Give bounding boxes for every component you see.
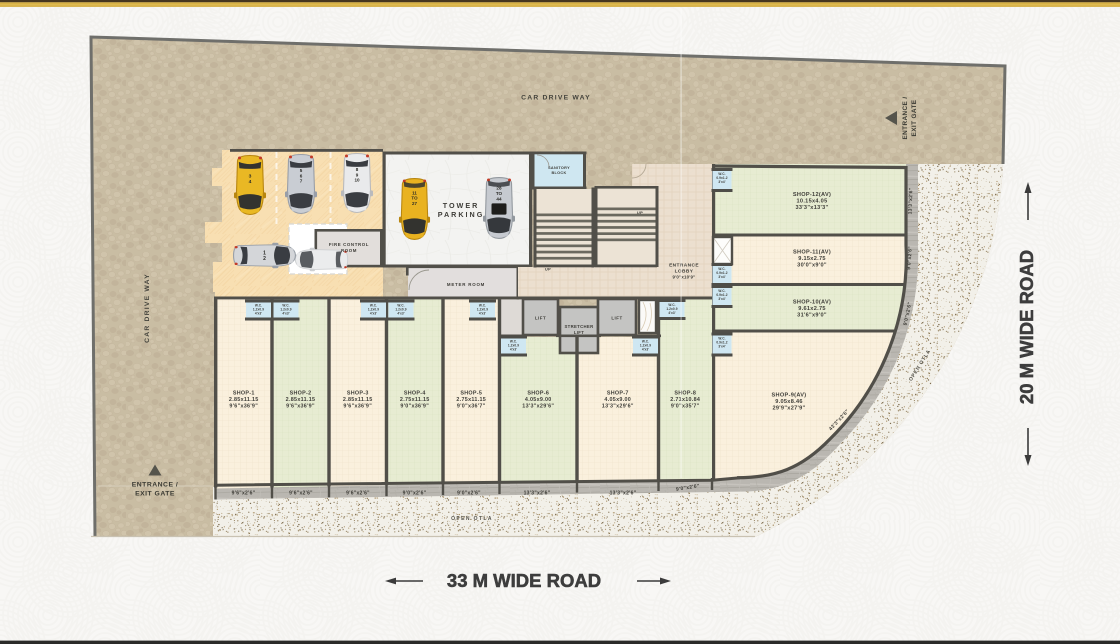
svg-text:SANITORY: SANITORY bbox=[548, 166, 570, 170]
svg-text:SHOP-4: SHOP-4 bbox=[404, 391, 426, 397]
svg-text:BLOCK: BLOCK bbox=[552, 171, 567, 175]
svg-text:FIRE CONTROL: FIRE CONTROL bbox=[329, 242, 369, 247]
svg-text:3'x4': 3'x4' bbox=[718, 180, 725, 184]
svg-text:3'x4': 3'x4' bbox=[718, 345, 725, 349]
svg-text:9'0"x36'7": 9'0"x36'7" bbox=[457, 403, 486, 409]
svg-text:SHOP-9(AV): SHOP-9(AV) bbox=[772, 393, 807, 399]
svg-text:2.85x11.15: 2.85x11.15 bbox=[343, 397, 373, 403]
svg-text:9'6"x36'9": 9'6"x36'9" bbox=[286, 403, 315, 409]
svg-text:4'x3': 4'x3' bbox=[479, 312, 486, 316]
svg-text:PARKING: PARKING bbox=[438, 210, 485, 219]
svg-text:33 M WIDE ROAD: 33 M WIDE ROAD bbox=[447, 570, 601, 591]
svg-text:SHOP-7: SHOP-7 bbox=[607, 391, 629, 397]
svg-text:9'6"x2'6": 9'6"x2'6" bbox=[289, 491, 313, 497]
svg-text:4: 4 bbox=[249, 179, 252, 185]
svg-text:SHOP-3: SHOP-3 bbox=[347, 391, 369, 397]
svg-text:ENTRANCE: ENTRANCE bbox=[669, 263, 699, 269]
svg-text:10: 10 bbox=[354, 177, 360, 182]
svg-text:33'3"x13'3": 33'3"x13'3" bbox=[795, 205, 828, 211]
svg-text:CAR DRIVE WAY: CAR DRIVE WAY bbox=[144, 273, 151, 343]
svg-text:2.75x11.15: 2.75x11.15 bbox=[456, 397, 486, 403]
svg-text:SHOP-10(AV): SHOP-10(AV) bbox=[793, 300, 831, 306]
svg-text:EXIT GATE: EXIT GATE bbox=[911, 99, 918, 136]
svg-text:SHOP-6: SHOP-6 bbox=[527, 391, 549, 397]
svg-text:9'0"x36'9": 9'0"x36'9" bbox=[400, 403, 429, 409]
svg-text:9'0"x35'7": 9'0"x35'7" bbox=[671, 403, 700, 409]
svg-text:LIFT: LIFT bbox=[611, 316, 622, 321]
svg-text:SHOP-8: SHOP-8 bbox=[674, 391, 696, 397]
svg-text:9.15x2.75: 9.15x2.75 bbox=[798, 256, 826, 262]
svg-text:4'x3': 4'x3' bbox=[397, 312, 404, 316]
svg-text:9'6"x36'9": 9'6"x36'9" bbox=[229, 403, 258, 409]
svg-text:9.05x8.46: 9.05x8.46 bbox=[775, 399, 803, 405]
svg-text:2.75x11.15: 2.75x11.15 bbox=[400, 397, 430, 403]
svg-text:LIFT: LIFT bbox=[535, 316, 546, 321]
svg-text:31'6"x9'0": 31'6"x9'0" bbox=[797, 312, 827, 318]
svg-text:9.61x2.75: 9.61x2.75 bbox=[798, 306, 826, 312]
svg-text:9'0"x10'9": 9'0"x10'9" bbox=[673, 275, 696, 280]
svg-text:44: 44 bbox=[496, 196, 502, 201]
svg-text:TOWER: TOWER bbox=[443, 201, 480, 210]
svg-text:LIFT: LIFT bbox=[574, 330, 584, 335]
svg-text:SHOP-12(AV): SHOP-12(AV) bbox=[793, 192, 831, 198]
svg-text:4'x3': 4'x3' bbox=[668, 311, 675, 315]
svg-text:4'x3': 4'x3' bbox=[255, 312, 262, 316]
svg-text:CAR DRIVE WAY: CAR DRIVE WAY bbox=[521, 95, 591, 102]
svg-text:10.15x4.05: 10.15x4.05 bbox=[797, 198, 828, 204]
svg-text:SHOP-5: SHOP-5 bbox=[460, 391, 482, 397]
svg-text:UP: UP bbox=[545, 267, 551, 272]
svg-text:2.71x10.84: 2.71x10.84 bbox=[670, 397, 700, 403]
svg-text:SHOP-1: SHOP-1 bbox=[233, 391, 255, 397]
svg-text:9'6"x2'6": 9'6"x2'6" bbox=[346, 491, 370, 497]
svg-text:13'3"x2'6": 13'3"x2'6" bbox=[524, 491, 551, 497]
svg-text:4'x3': 4'x3' bbox=[282, 312, 289, 316]
svg-text:ROOM: ROOM bbox=[341, 248, 357, 253]
svg-text:4'x3': 4'x3' bbox=[642, 348, 649, 352]
svg-text:4.05x9.00: 4.05x9.00 bbox=[604, 397, 631, 403]
svg-text:ENTRANCE /: ENTRANCE / bbox=[902, 96, 909, 139]
svg-text:SHOP-2: SHOP-2 bbox=[290, 391, 312, 397]
svg-text:UP: UP bbox=[637, 210, 643, 215]
svg-text:4'x3': 4'x3' bbox=[510, 348, 517, 352]
svg-text:4.05x9.00: 4.05x9.00 bbox=[525, 397, 552, 403]
svg-text:2: 2 bbox=[263, 256, 266, 262]
svg-text:9'6"x2'6": 9'6"x2'6" bbox=[232, 491, 256, 497]
svg-text:9'0"x2'6": 9'0"x2'6" bbox=[403, 491, 427, 497]
svg-text:9'0"x2'6": 9'0"x2'6" bbox=[457, 491, 481, 497]
svg-text:27: 27 bbox=[412, 201, 417, 206]
svg-text:EXIT GATE: EXIT GATE bbox=[135, 491, 175, 498]
svg-text:4'x3': 4'x3' bbox=[370, 312, 377, 316]
svg-text:13'3"x2'6": 13'3"x2'6" bbox=[610, 491, 637, 497]
svg-text:3'x4': 3'x4' bbox=[718, 297, 725, 301]
svg-text:13'3"x2'6": 13'3"x2'6" bbox=[908, 187, 915, 214]
svg-text:9'6"x36'9": 9'6"x36'9" bbox=[343, 403, 372, 409]
svg-text:2.85x11.15: 2.85x11.15 bbox=[229, 397, 259, 403]
svg-text:METER ROOM: METER ROOM bbox=[447, 282, 485, 287]
svg-text:2.85x11.15: 2.85x11.15 bbox=[286, 397, 316, 403]
svg-text:ENTRANCE /: ENTRANCE / bbox=[132, 482, 179, 489]
svg-text:29'9"x27'9": 29'9"x27'9" bbox=[772, 405, 805, 411]
svg-text:OPEN OTLA: OPEN OTLA bbox=[451, 516, 493, 522]
svg-text:3'x4': 3'x4' bbox=[718, 275, 725, 279]
svg-text:13'3"x29'6": 13'3"x29'6" bbox=[602, 403, 634, 409]
svg-text:STRETCHER: STRETCHER bbox=[565, 324, 595, 329]
svg-text:30'0"x9'0": 30'0"x9'0" bbox=[797, 262, 827, 268]
svg-text:3: 3 bbox=[249, 174, 252, 180]
svg-text:SHOP-11(AV): SHOP-11(AV) bbox=[793, 250, 831, 256]
svg-text:13'3"x29'6": 13'3"x29'6" bbox=[522, 403, 554, 409]
svg-text:20 M WIDE ROAD: 20 M WIDE ROAD bbox=[1016, 250, 1037, 404]
svg-text:TO: TO bbox=[496, 191, 503, 196]
